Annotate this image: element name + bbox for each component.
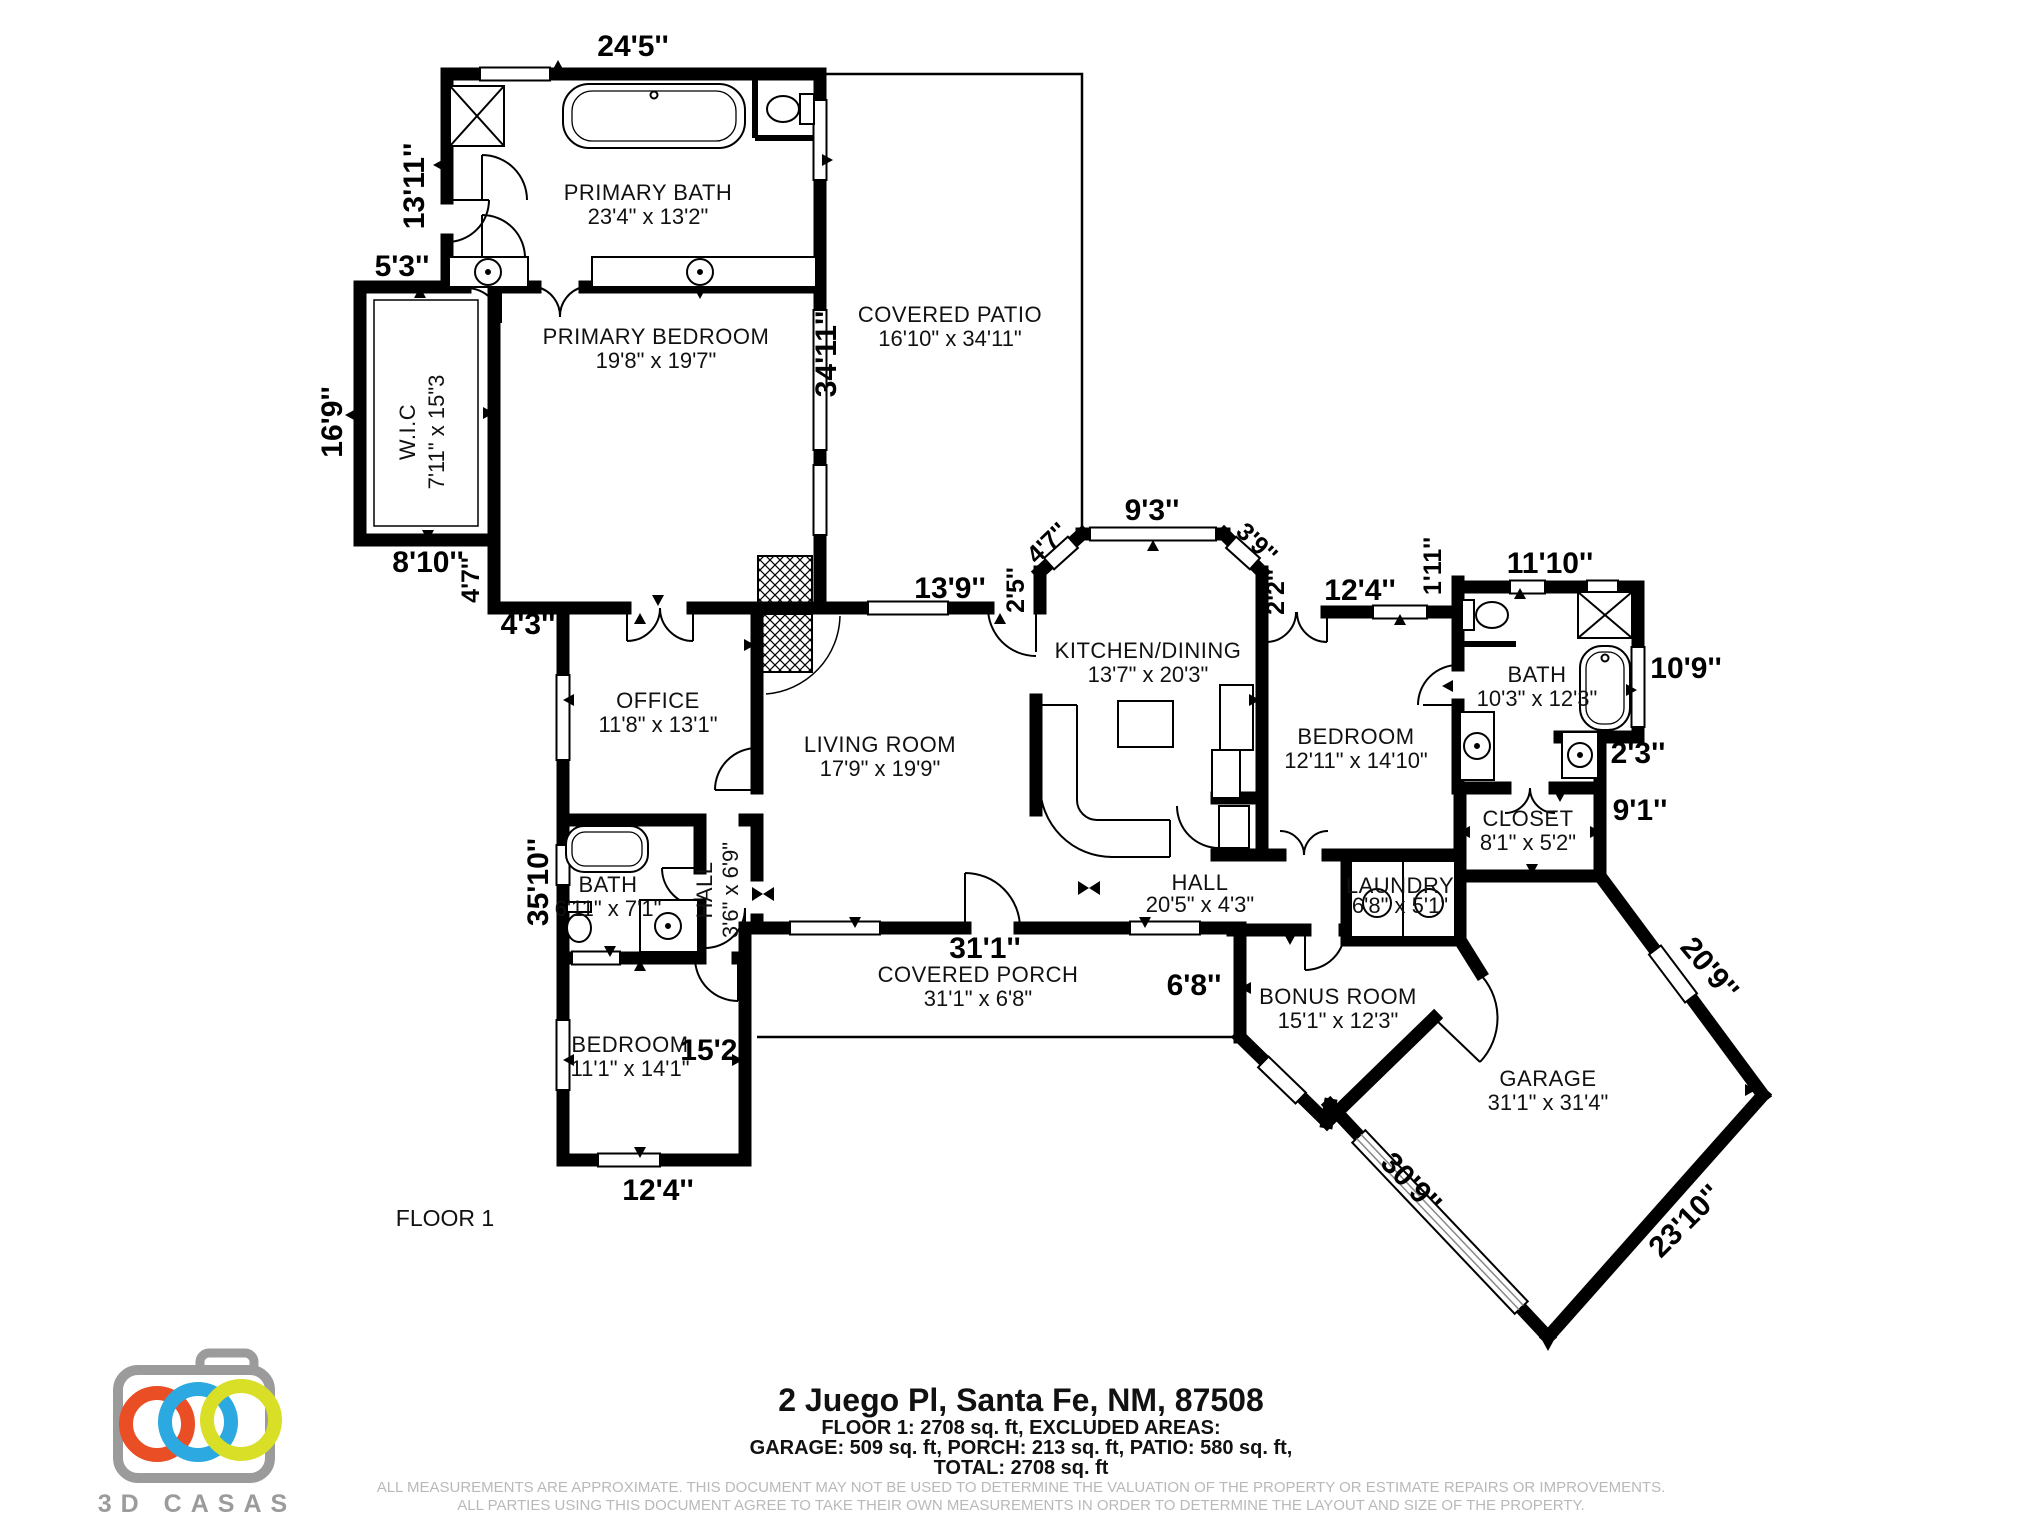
- disclaimer-line-1: ALL MEASUREMENTS ARE APPROXIMATE. THIS D…: [0, 1479, 2042, 1496]
- room-dims-laundry: 6'8" x 5'1": [1352, 893, 1448, 918]
- dim-5-3: 5'3'': [375, 250, 430, 283]
- room-label-kitchen-dining: KITCHEN/DINING: [1055, 638, 1242, 663]
- bathtub-3: [566, 826, 648, 872]
- room-dims-covered-porch: 31'1" x 6'8": [924, 986, 1032, 1011]
- vanity-sink: [449, 257, 816, 287]
- dim-12-4-a: 12'4'': [1324, 574, 1395, 607]
- dim-12-4-b: 12'4'': [622, 1174, 693, 1207]
- dim-2-2: 2'2'': [1262, 569, 1290, 615]
- room-label-bath-small: BATH: [578, 872, 637, 897]
- dim-8-10: 8'10'': [392, 546, 463, 579]
- floor-label: FLOOR 1: [396, 1205, 494, 1231]
- room-dims-bonus-room: 15'1" x 12'3": [1278, 1008, 1399, 1033]
- property-address: 2 Juego Pl, Santa Fe, NM, 87508: [0, 1382, 2042, 1419]
- room-label-bedroom-right: BEDROOM: [1297, 724, 1414, 749]
- room-label-office: OFFICE: [616, 688, 700, 713]
- toilet-2: [1462, 600, 1508, 630]
- room-label-covered-patio: COVERED PATIO: [858, 302, 1042, 327]
- bathtub: [563, 84, 745, 148]
- floorplan-page: PRIMARY BATH 23'4" x 13'2" W.I.C 7'11" x…: [0, 0, 2042, 1536]
- room-label-closet: CLOSET: [1482, 806, 1573, 831]
- shower-2: [1578, 592, 1632, 638]
- dim-1-11: 1'11'': [1419, 537, 1447, 595]
- room-label-bonus-room: BONUS ROOM: [1259, 984, 1417, 1009]
- toilet: [767, 94, 814, 124]
- dining-table: [1118, 701, 1173, 747]
- dim-2-5: 2'5'': [1002, 567, 1030, 613]
- shower: [450, 86, 504, 146]
- room-label-bedroom-left: BEDROOM: [571, 1032, 688, 1057]
- dim-4-7-a: 4'7'': [457, 557, 485, 603]
- room-dims-hall: 20'5" x 4'3": [1146, 892, 1254, 917]
- dim-35-10: 35'10'': [522, 838, 555, 926]
- dim-13-11: 13'11'': [398, 143, 431, 229]
- room-label-garage: GARAGE: [1499, 1066, 1596, 1091]
- total-area-line: TOTAL: 2708 sq. ft: [0, 1457, 2042, 1480]
- dim-9-1: 9'1'': [1613, 794, 1668, 827]
- room-dims-office: 11'8" x 13'1": [598, 712, 717, 737]
- dim-24-5: 24'5'': [597, 30, 668, 63]
- floorplan-drawing: PRIMARY BATH 23'4" x 13'2" W.I.C 7'11" x…: [0, 0, 2042, 1536]
- dim-31-1: 31'1'': [949, 932, 1020, 965]
- room-labels: PRIMARY BATH 23'4" x 13'2" W.I.C 7'11" x…: [395, 180, 1608, 1115]
- dim-2-3: 2'3'': [1611, 737, 1666, 770]
- room-dims-wic: 7'11" x 15"3: [424, 375, 449, 490]
- room-dims-primary-bath: 23'4" x 13'2": [588, 204, 709, 229]
- room-dims-hall-small: 3'6" x 6'9": [718, 842, 743, 938]
- dim-4-7-b: 4'7'': [1021, 517, 1073, 569]
- room-label-primary-bath: PRIMARY BATH: [564, 180, 733, 205]
- dim-13-9: 13'9'': [914, 572, 985, 605]
- room-dims-bath-small: 6'11" x 7'1": [555, 896, 662, 921]
- dim-6-8: 6'8'': [1167, 969, 1222, 1002]
- room-dims-bedroom-right: 12'11" x 14'10": [1284, 748, 1428, 773]
- fireplace: [756, 556, 840, 694]
- room-label-bath-right: BATH: [1507, 662, 1566, 687]
- room-dims-closet: 8'1" x 5'2": [1480, 830, 1576, 855]
- dim-9-3: 9'3'': [1125, 494, 1180, 527]
- dim-11-10: 11'10'': [1507, 547, 1593, 580]
- dim-15-2: 15'2'': [680, 1034, 751, 1067]
- room-dims-living-room: 17'9" x 19'9": [820, 756, 941, 781]
- room-label-living-room: LIVING ROOM: [804, 732, 956, 757]
- disclaimer-line-2: ALL PARTIES USING THIS DOCUMENT AGREE TO…: [0, 1497, 2042, 1514]
- room-label-covered-porch: COVERED PORCH: [878, 962, 1079, 987]
- vanity-sink-2: [1460, 712, 1598, 780]
- dim-4-3: 4'3'': [501, 608, 556, 641]
- dim-3-9: 3'9'': [1230, 517, 1282, 569]
- room-dims-bath-right: 10'3" x 12'3": [1477, 686, 1598, 711]
- dim-16-9: 16'9'': [316, 386, 349, 457]
- room-dims-kitchen-dining: 13'7" x 20'3": [1088, 662, 1209, 687]
- room-dims-bedroom-left: 11'1" x 14'1": [570, 1056, 689, 1081]
- room-dims-garage: 31'1" x 31'4": [1488, 1090, 1609, 1115]
- room-label-primary-bedroom: PRIMARY BEDROOM: [543, 324, 770, 349]
- partition-walls: [755, 74, 1516, 644]
- room-dims-covered-patio: 16'10" x 34'11": [878, 326, 1022, 351]
- dim-34-11: 34'11'': [810, 311, 843, 397]
- dim-10-9: 10'9'': [1650, 652, 1721, 685]
- room-label-wic: W.I.C: [395, 404, 420, 460]
- room-label-hall-small: HALL: [692, 861, 717, 918]
- fridge-cabinets: [1212, 685, 1253, 798]
- room-dims-primary-bedroom: 19'8" x 19'7": [596, 348, 717, 373]
